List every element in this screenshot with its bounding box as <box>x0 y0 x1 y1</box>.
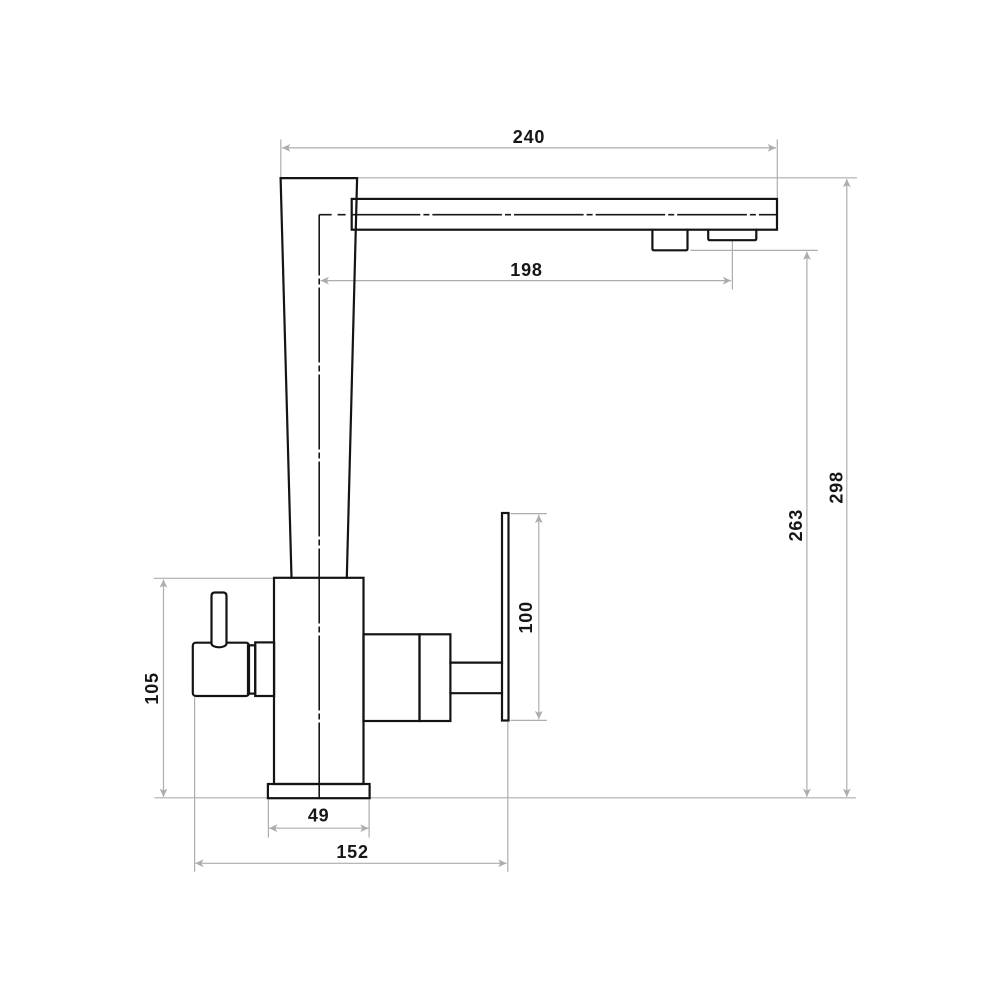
svg-text:298: 298 <box>826 471 846 503</box>
svg-text:263: 263 <box>786 509 806 541</box>
svg-text:152: 152 <box>336 842 368 862</box>
svg-text:240: 240 <box>513 127 545 147</box>
svg-text:49: 49 <box>308 806 330 826</box>
svg-text:105: 105 <box>142 672 162 704</box>
svg-text:100: 100 <box>516 601 536 633</box>
svg-text:198: 198 <box>510 260 542 280</box>
